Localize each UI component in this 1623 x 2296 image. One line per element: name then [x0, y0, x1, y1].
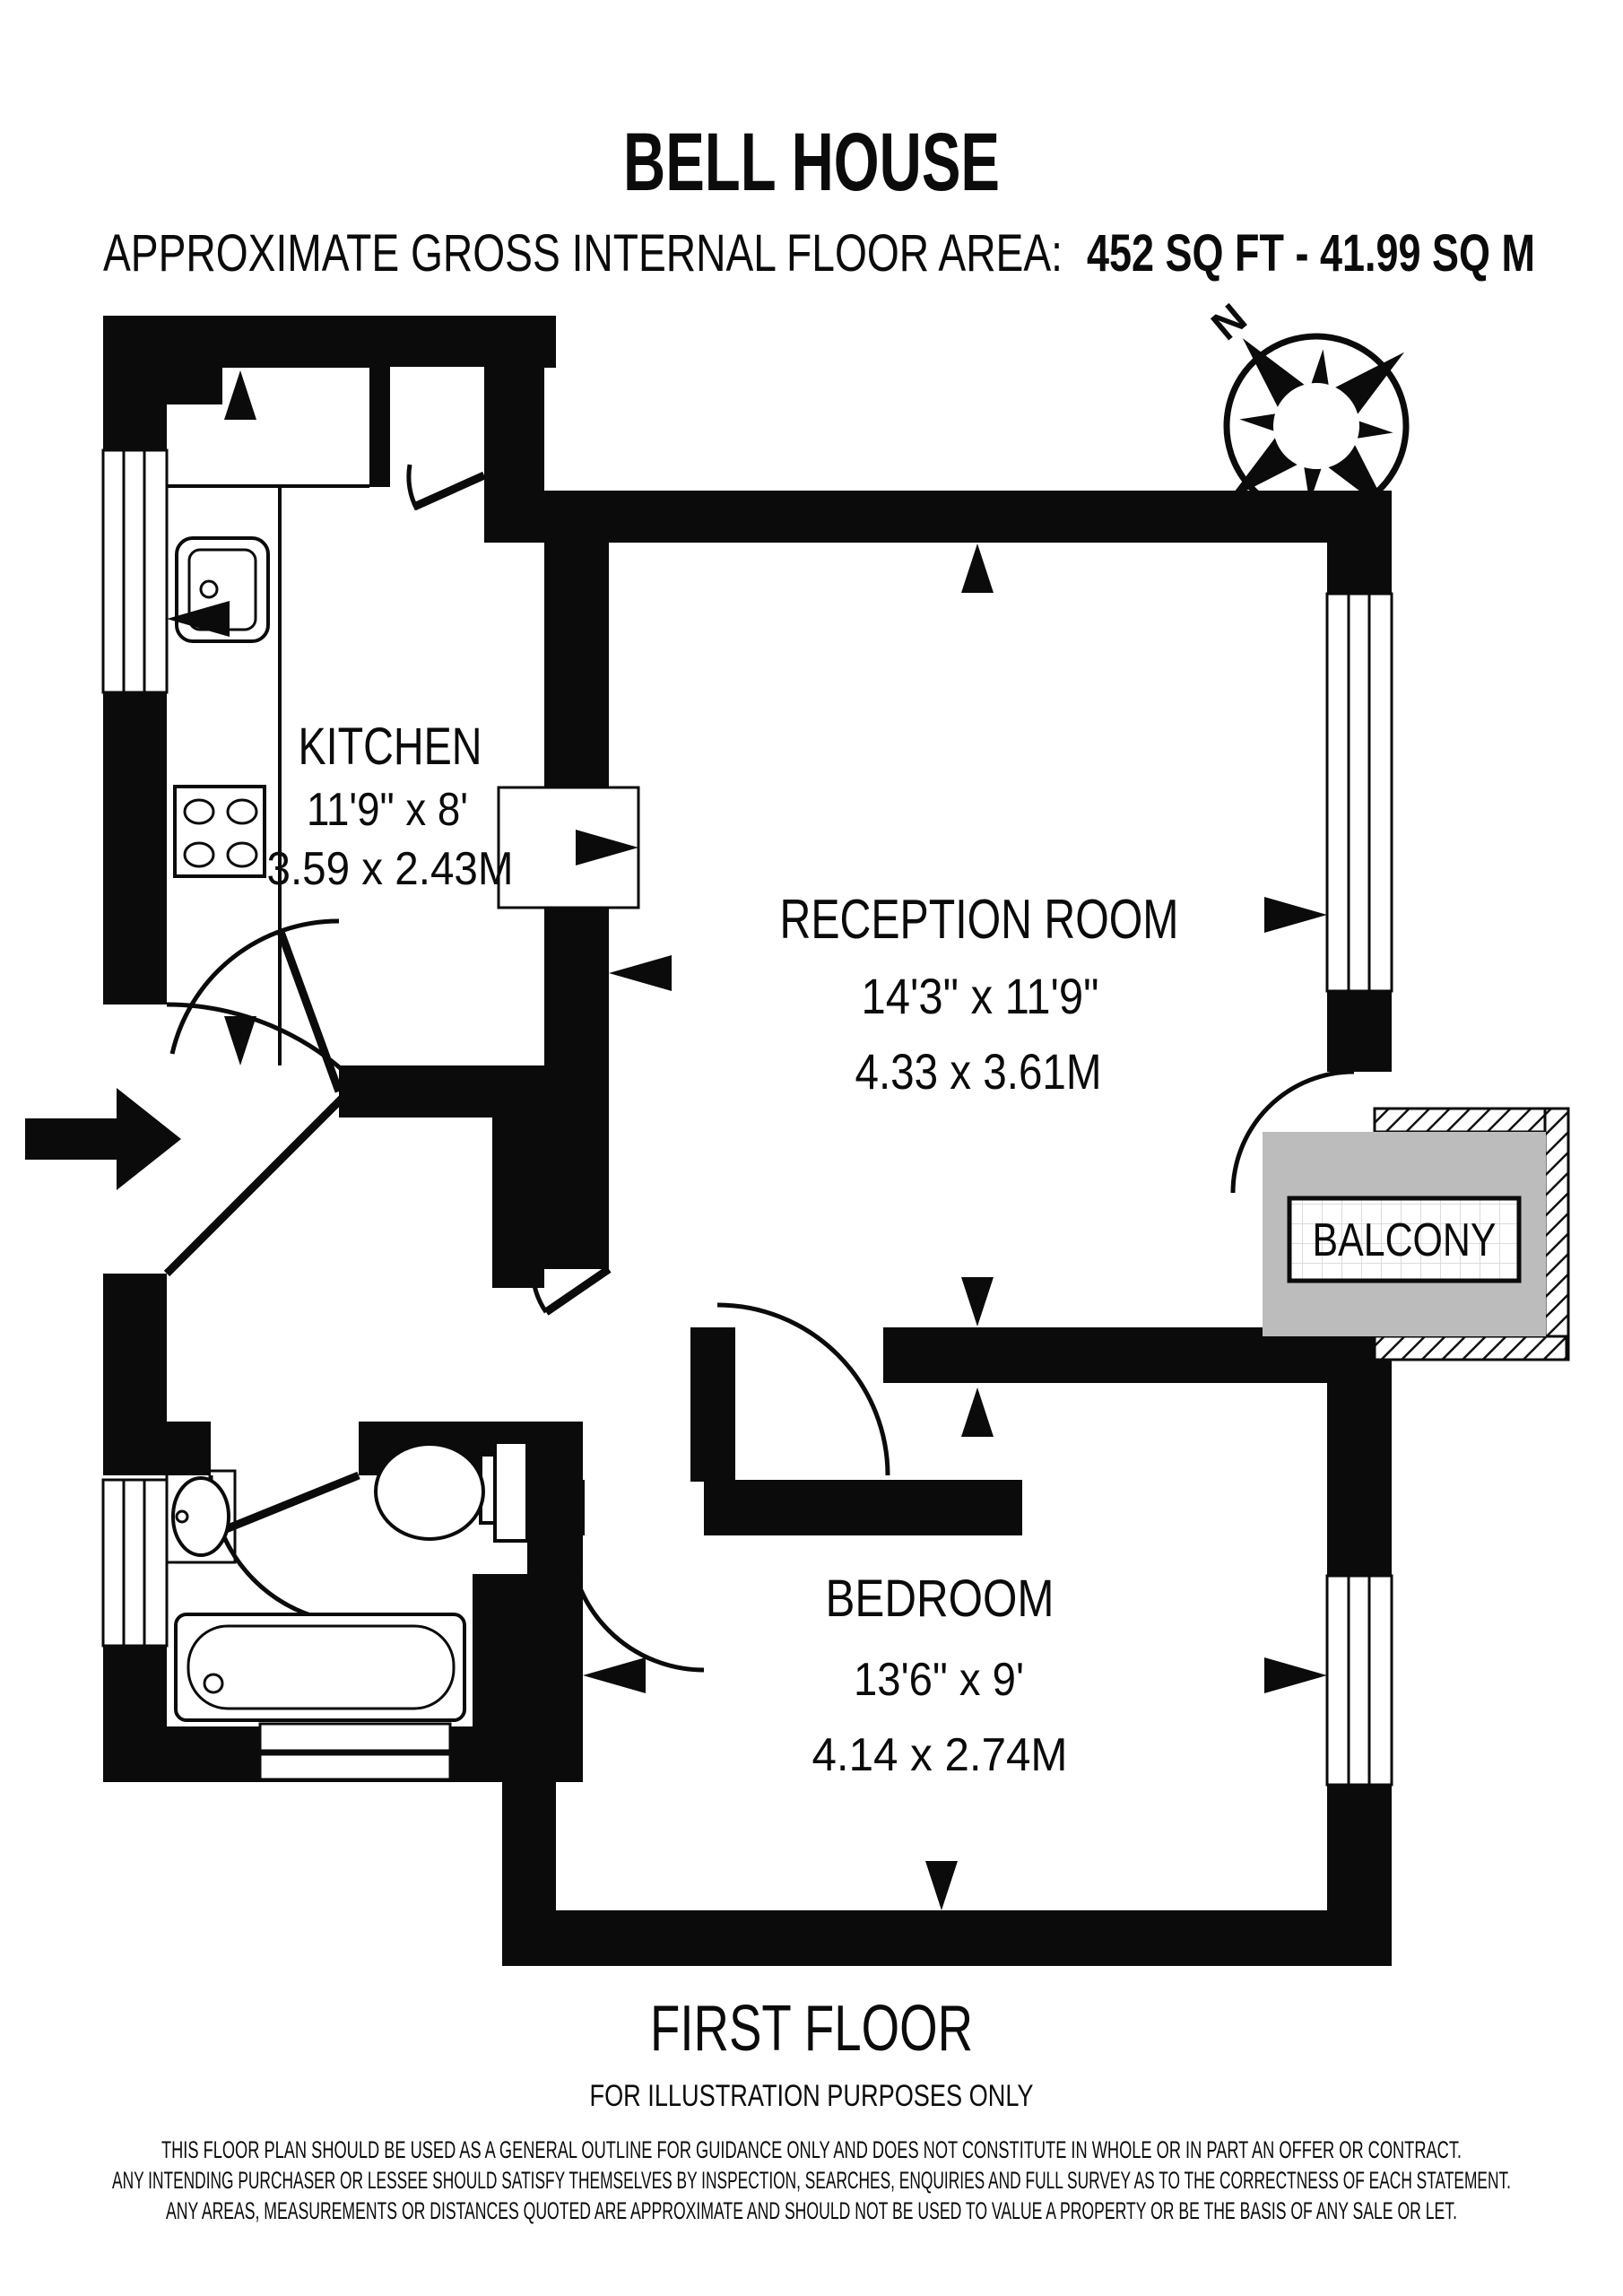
- wall-left-below-entry: [103, 1274, 167, 1424]
- wall-bath-top-left: [103, 1422, 211, 1475]
- hob-icon: [175, 787, 265, 876]
- wall-reception-top: [544, 491, 1392, 543]
- balcony: BALCONY: [1263, 1109, 1568, 1360]
- wall-bedroom-right-bottom: [1327, 1785, 1392, 1912]
- kitchen-size-imperial: 11'9" x 8': [307, 784, 468, 836]
- tub-step-2: [260, 1754, 450, 1779]
- bedroom-arrow-right: [1264, 1657, 1327, 1693]
- wall-step-right-of-closet: [484, 316, 544, 543]
- floorplan-page: BELL HOUSE APPROXIMATE GROSS INTERNAL FL…: [0, 0, 1623, 2296]
- wall-reception-right-mid: [1327, 991, 1392, 1072]
- compass-north-label: N: [1202, 294, 1255, 349]
- kitchen-arrow-up: [224, 370, 256, 420]
- kitchen-size-metric: 3.59 x 2.43M: [267, 843, 514, 895]
- reception-size-metric: 4.33 x 3.61M: [855, 1043, 1102, 1100]
- wall-left-mid: [103, 691, 167, 1004]
- balcony-hatch-right: [1545, 1109, 1568, 1360]
- wall-kitchen-stub: [167, 367, 222, 404]
- kitchen-door-leaf: [281, 932, 339, 1091]
- wall-left-corner: [103, 316, 167, 452]
- reception-size-imperial: 14'3" x 11'9": [862, 968, 1099, 1024]
- wall-closet-jamb: [369, 367, 390, 487]
- reception-window: [1327, 594, 1392, 991]
- illustration-note: FOR ILLUSTRATION PURPOSES ONLY: [590, 2079, 1034, 2113]
- kitchen-arrow-down: [224, 1016, 256, 1065]
- bedroom-window: [1327, 1576, 1392, 1785]
- reception-arrow-down: [961, 1277, 994, 1326]
- bathroom-window: [103, 1480, 167, 1646]
- reception-arrow-left: [609, 955, 672, 991]
- disclaimer-line-2: ANY INTENDING PURCHASER OR LESSEE SHOULD…: [112, 2167, 1511, 2194]
- reception-arrow-right: [1264, 897, 1327, 933]
- header: BELL HOUSE APPROXIMATE GROSS INTERNAL FL…: [103, 117, 1535, 283]
- bathroom-door-leaf: [221, 1475, 359, 1531]
- bedroom-door-arc: [569, 1535, 704, 1670]
- wall-bedroom-bottom: [502, 1910, 1392, 1966]
- wall-bedroom-right-top: [1327, 1383, 1392, 1576]
- area-label: APPROXIMATE GROSS INTERNAL FLOOR AREA:: [103, 224, 1063, 283]
- wall-bedroom-left-lower: [502, 1780, 556, 1912]
- wall-bedroom-top: [704, 1480, 1022, 1535]
- bedroom-arrow-up: [961, 1387, 994, 1437]
- toilet-icon: [376, 1442, 527, 1541]
- kitchen-label: KITCHEN: [299, 717, 482, 776]
- hall-closet: [390, 367, 484, 468]
- balcony-label: BALCONY: [1313, 1214, 1497, 1266]
- entry-arrow-icon: [25, 1088, 181, 1190]
- page-title: BELL HOUSE: [623, 117, 1000, 208]
- entry-door-leaf: [167, 1083, 357, 1274]
- bedroom-arrow-down: [925, 1861, 958, 1910]
- tub-step: [260, 1724, 450, 1751]
- bedroom-size-imperial: 13'6" x 9': [854, 1654, 1024, 1706]
- bedroom-size-metric: 4.14 x 2.74M: [812, 1729, 1068, 1781]
- hall-door-leaf: [546, 1269, 609, 1312]
- disclaimer-line-1: THIS FLOOR PLAN SHOULD BE USED AS A GENE…: [161, 2136, 1462, 2163]
- closet-door-leaf: [414, 475, 484, 507]
- floorplan-svg: BELL HOUSE APPROXIMATE GROSS INTERNAL FL…: [0, 0, 1623, 2296]
- floor-label: FIRST FLOOR: [650, 1993, 973, 2065]
- balcony-hatch-top: [1375, 1109, 1567, 1132]
- wall-kitchen-bottom: [339, 1065, 544, 1118]
- windows: [103, 450, 1392, 1785]
- bathroom-door-arc: [211, 1475, 359, 1623]
- wall-bedroom-top-stub: [556, 1480, 585, 1535]
- wall-bath-bedroom-block: [473, 1574, 583, 1782]
- disclaimer-line-3: ANY AREAS, MEASUREMENTS OR DISTANCES QUO…: [166, 2197, 1457, 2224]
- wall-hall-divider: [492, 1118, 544, 1288]
- reception-label: RECEPTION ROOM: [780, 889, 1179, 951]
- kitchen-window: [103, 450, 167, 692]
- footer: FIRST FLOOR FOR ILLUSTRATION PURPOSES ON…: [112, 1993, 1511, 2224]
- reception-arrow-up: [961, 544, 994, 593]
- balcony-hatch-bottom: [1375, 1336, 1567, 1360]
- bedroom-label: BEDROOM: [826, 1570, 1055, 1628]
- wall-hall-connector: [690, 1327, 735, 1482]
- area-value: 452 SQ FT - 41.99 SQ M: [1087, 224, 1535, 283]
- bedroom-arrow-left: [583, 1657, 646, 1693]
- reception-door-arc: [717, 1305, 888, 1475]
- washbasin-icon: [167, 1471, 235, 1562]
- wall-reception-right-top: [1327, 543, 1392, 594]
- kitchen-fixtures: [167, 486, 369, 1065]
